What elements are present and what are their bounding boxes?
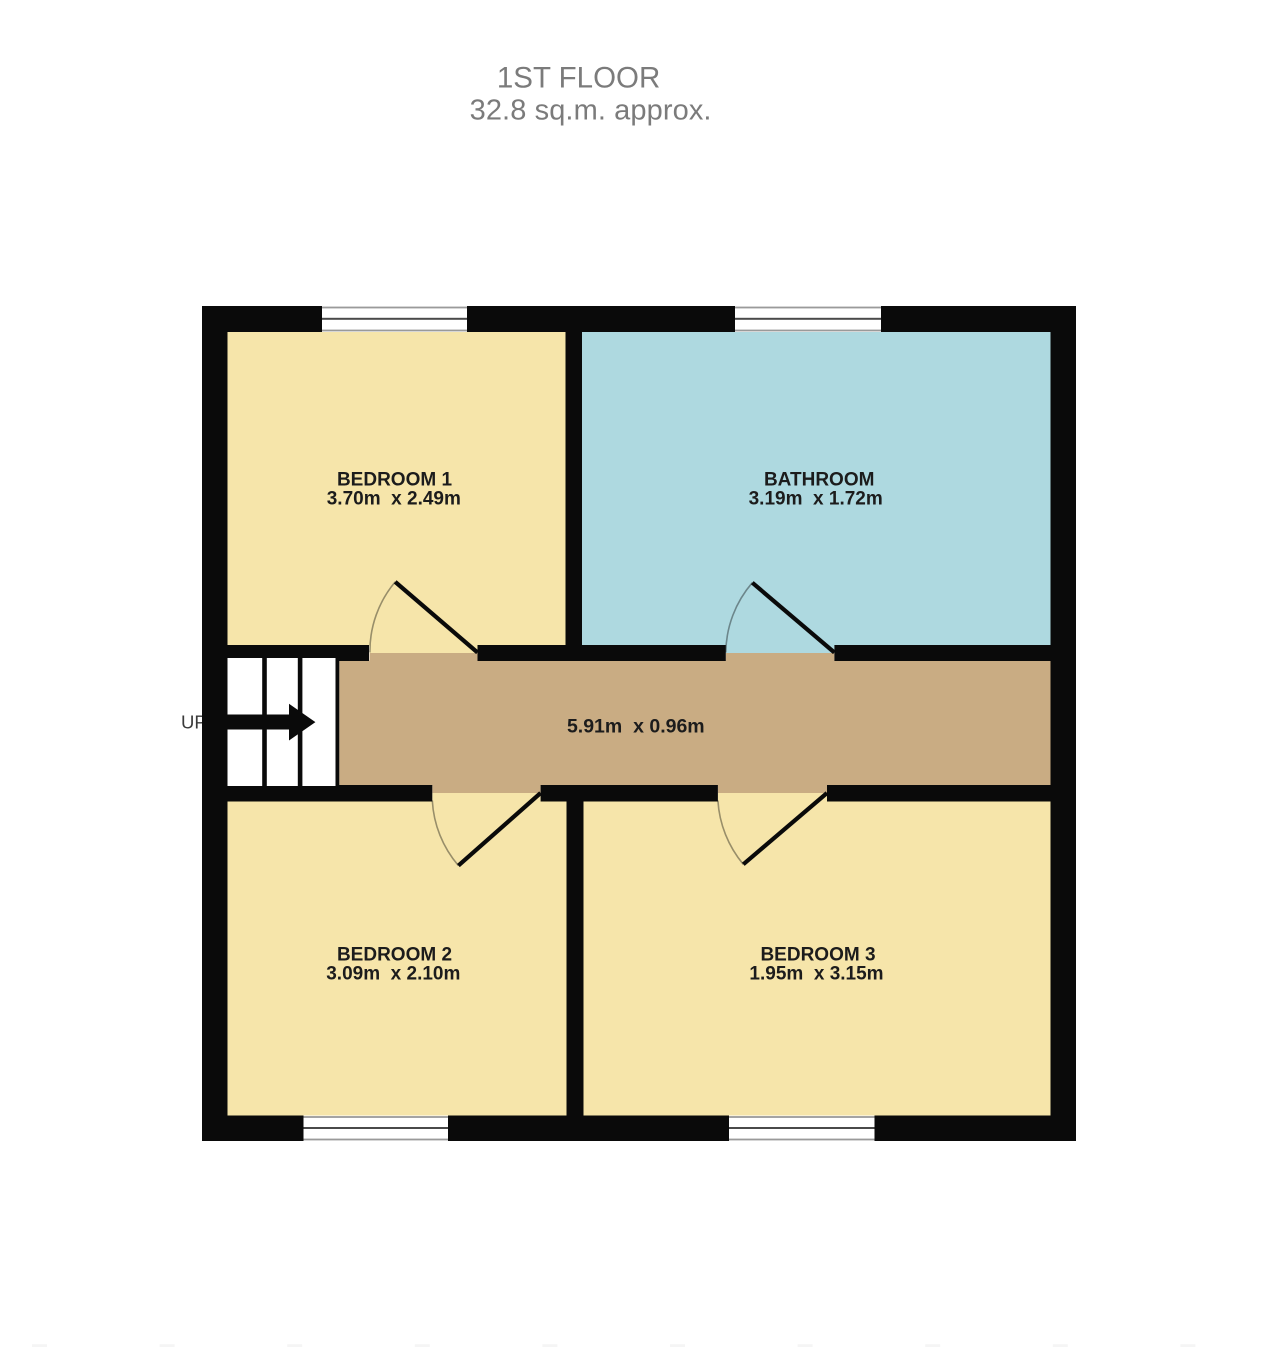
svg-text:3.70m x 2.49m: 3.70m x 2.49m <box>327 488 461 509</box>
svg-text:5.91m x 0.96m: 5.91m x 0.96m <box>567 715 705 737</box>
svg-text:3.09m x 2.10m: 3.09m x 2.10m <box>326 963 460 984</box>
svg-text:1ST FLOOR: 1ST FLOOR <box>497 62 660 95</box>
svg-text:1.95m x 3.15m: 1.95m x 3.15m <box>749 963 883 984</box>
svg-text:32.8 sq.m. approx.: 32.8 sq.m. approx. <box>470 94 712 126</box>
svg-text:3.19m x 1.72m: 3.19m x 1.72m <box>749 488 883 509</box>
